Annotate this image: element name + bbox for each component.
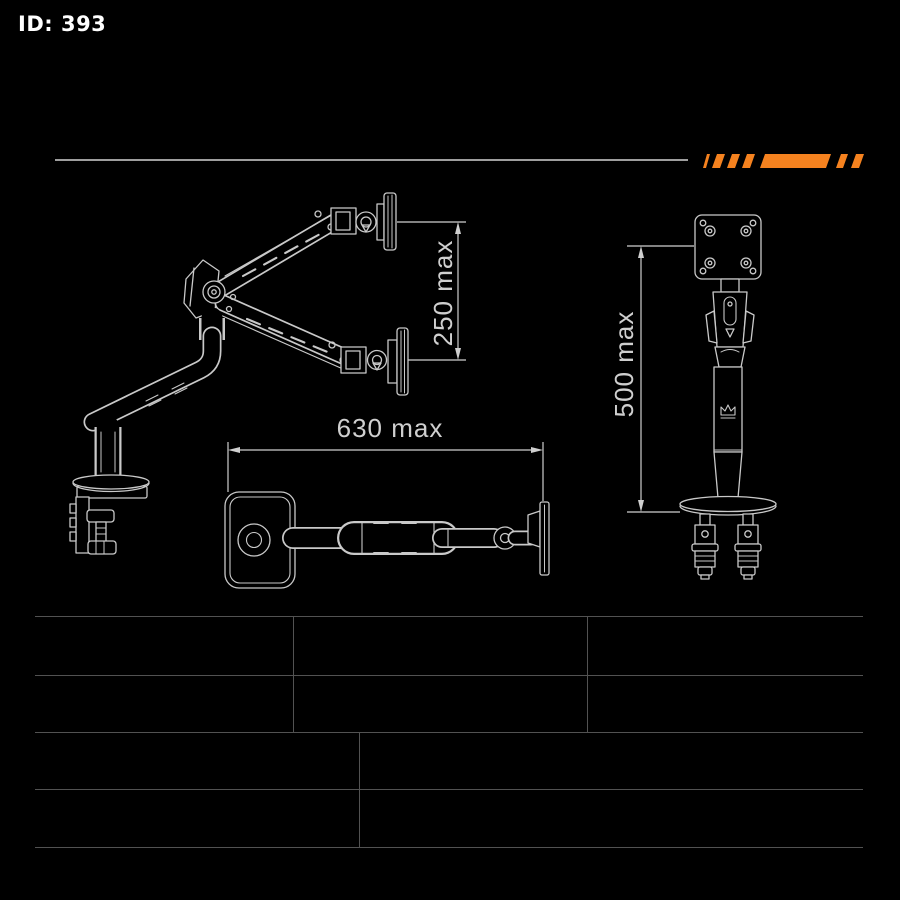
spec-cell: [35, 790, 360, 847]
spec-cell: [294, 676, 588, 732]
arrowhead-down: [638, 500, 644, 512]
dimension-500: 500 max: [609, 246, 694, 512]
spec-cell: [35, 733, 360, 789]
table-row: [35, 733, 863, 790]
clamp-knob: [88, 541, 116, 554]
clamp-pad: [87, 510, 114, 522]
vesa-head-lower: [341, 328, 408, 395]
thumbscrew-left: [692, 514, 718, 579]
monitor-arm-front-view: [680, 215, 776, 579]
tilt-joint-front: [706, 279, 754, 367]
spec-table: [35, 616, 863, 848]
blueprint-page: ID: 393: [0, 0, 900, 900]
arrowhead-down: [455, 348, 461, 360]
riser-post: [101, 427, 115, 475]
desk-clamp: [70, 497, 116, 554]
dimension-label-500: 500 max: [609, 311, 639, 418]
gas-spring-arm-upper: [221, 211, 334, 289]
vesa-plate-edge-lower: [397, 328, 408, 395]
clamp-thumbscrews: [692, 514, 761, 579]
thumbscrew-right: [735, 514, 761, 579]
gas-spring-arm-lower: [218, 303, 346, 369]
arm-top: [293, 523, 531, 553]
dimension-label-630: 630 max: [337, 413, 444, 443]
spec-cell: [360, 790, 863, 847]
arrowhead-up: [638, 246, 644, 258]
table-row: [35, 790, 863, 848]
vesa-head-top: [528, 502, 549, 575]
spec-cell: [35, 676, 294, 732]
vesa-head-upper: [331, 193, 396, 250]
base-disc-front: [680, 497, 776, 516]
arrowhead-up: [455, 222, 461, 234]
spec-cell: [588, 676, 863, 732]
dimension-630: 630 max: [228, 413, 543, 501]
spec-cell: [35, 617, 294, 675]
spec-cell: [360, 733, 863, 789]
arrowhead-left: [228, 447, 240, 453]
hazard-solid-block: [760, 154, 831, 168]
base-disc-side: [73, 475, 149, 492]
arrowhead-right: [531, 447, 543, 453]
column-front: [714, 367, 742, 498]
hazard-stripes-decoration: [703, 154, 864, 168]
spec-cell: [588, 617, 863, 675]
clamp-screw-shaft: [96, 522, 106, 542]
lower-support-arm: [93, 318, 219, 422]
table-row: [35, 617, 863, 676]
dimension-label-250: 250 max: [428, 240, 458, 347]
id-label: ID: 393: [18, 12, 106, 36]
vesa-plate-front: [695, 215, 761, 279]
vesa-plate-edge-upper: [384, 193, 396, 250]
monitor-arm-top-view: [225, 492, 549, 588]
table-row: [35, 676, 863, 733]
spec-cell: [294, 617, 588, 675]
